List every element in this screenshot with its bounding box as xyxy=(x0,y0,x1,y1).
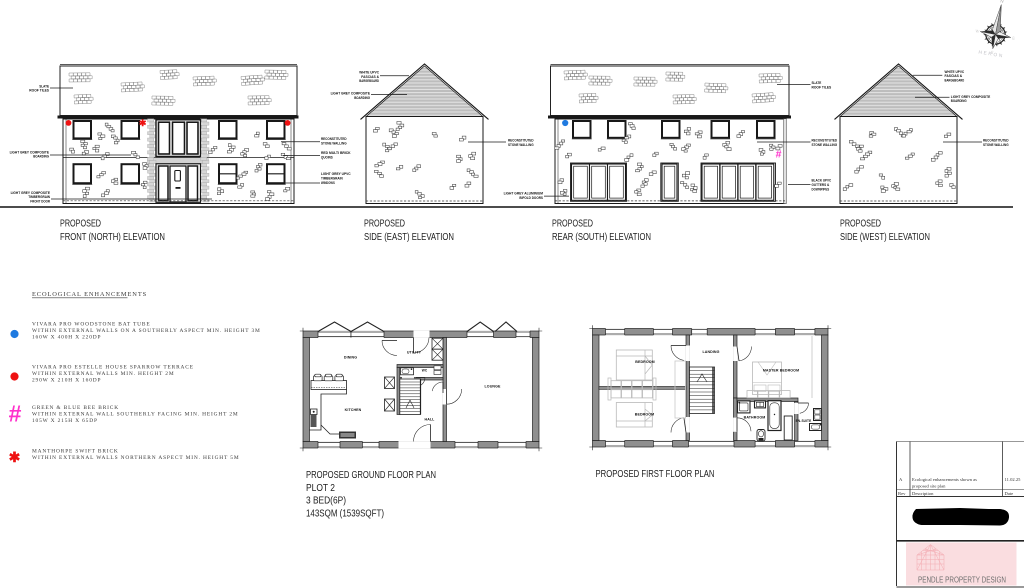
svg-text:FRONT (NORTH) ELEVATION: FRONT (NORTH) ELEVATION xyxy=(60,232,165,243)
svg-text:PROPOSED: PROPOSED xyxy=(60,219,101,230)
svg-text:BEDROOM: BEDROOM xyxy=(635,360,654,364)
svg-text:VIVARA PRO WOODSTONE BAT TUBE: VIVARA PRO WOODSTONE BAT TUBE xyxy=(32,322,151,328)
svg-text:BEDROOM: BEDROOM xyxy=(635,413,654,417)
svg-text:105W X 215H X 65DP: 105W X 215H X 65DP xyxy=(32,418,98,424)
svg-text:WITHIN EXTERNAL WALL SOUTHERLY: WITHIN EXTERNAL WALL SOUTHERLY FACING MI… xyxy=(32,412,239,418)
svg-text:KITCHEN: KITCHEN xyxy=(345,408,362,412)
svg-text:WITHIN EXTERNAL WALLS ON A SOU: WITHIN EXTERNAL WALLS ON A SOUTHERLY ASP… xyxy=(32,328,261,334)
svg-text:PROPOSED FIRST FLOOR PLAN: PROPOSED FIRST FLOOR PLAN xyxy=(596,469,715,480)
svg-text:PROPOSED GROUND FLOOR PLAN: PROPOSED GROUND FLOOR PLAN xyxy=(306,470,436,481)
svg-text:RECONSTITUTEDSTONE WALLING: RECONSTITUTEDSTONE WALLING xyxy=(812,138,838,147)
svg-text:PENDLE PROPERTY DESIGN: PENDLE PROPERTY DESIGN xyxy=(918,576,1006,585)
svg-text:PROPOSED: PROPOSED xyxy=(364,219,405,230)
svg-text:GREEN & BLUE BEE BRICK: GREEN & BLUE BEE BRICK xyxy=(32,405,119,411)
svg-text:✱: ✱ xyxy=(139,118,147,128)
svg-text:LOUNGE: LOUNGE xyxy=(485,385,501,389)
svg-text:SIDE (EAST) ELEVATION: SIDE (EAST) ELEVATION xyxy=(364,232,454,243)
svg-text:UTILITY: UTILITY xyxy=(407,351,422,355)
svg-text:ECOLOGICAL ENHANCEMENTS: ECOLOGICAL ENHANCEMENTS xyxy=(32,291,147,298)
svg-text:WHITE UPVCFASCIAS &BARGEBOARD: WHITE UPVCFASCIAS &BARGEBOARD xyxy=(945,69,965,83)
svg-text:Date: Date xyxy=(1005,491,1014,496)
svg-text:proposed site plan: proposed site plan xyxy=(912,484,946,489)
svg-text:WITHIN EXTERNAL WALLS NORTHERN: WITHIN EXTERNAL WALLS NORTHERN ASPECT MI… xyxy=(32,455,239,461)
svg-text:WHITE UPVCFASCIAS &BARGEBOARD: WHITE UPVCFASCIAS &BARGEBOARD xyxy=(359,69,379,83)
svg-text:#: # xyxy=(776,149,782,161)
svg-text:BATHROOM: BATHROOM xyxy=(744,416,766,420)
svg-text:RECONSTITUTEDSTONE WALLING: RECONSTITUTEDSTONE WALLING xyxy=(508,137,534,146)
svg-text:#: # xyxy=(9,401,22,427)
svg-text:HALL: HALL xyxy=(425,418,436,422)
svg-text:DINING: DINING xyxy=(344,356,357,360)
svg-text:143SQM (1539SQFT): 143SQM (1539SQFT) xyxy=(306,508,384,519)
svg-text:160W X 400H X 220DP: 160W X 400H X 220DP xyxy=(32,335,101,341)
svg-text:✱: ✱ xyxy=(9,449,21,465)
svg-text:Description: Description xyxy=(912,491,934,496)
svg-text:PROPOSED: PROPOSED xyxy=(552,219,593,230)
svg-text:PROPOSED: PROPOSED xyxy=(840,219,881,230)
svg-text:PLOT 2: PLOT 2 xyxy=(306,483,335,494)
svg-text:290W X 210H X 160DP: 290W X 210H X 160DP xyxy=(32,378,101,384)
svg-text:EN-SUITE: EN-SUITE xyxy=(796,419,812,423)
svg-text:LANDING: LANDING xyxy=(702,350,719,354)
svg-text:REAR (SOUTH) ELEVATION: REAR (SOUTH) ELEVATION xyxy=(552,232,651,243)
svg-text:VIVARA PRO ESTELLE HOUSE SPARR: VIVARA PRO ESTELLE HOUSE SPARROW TERRACE xyxy=(32,365,194,371)
svg-text:WITHIN EXTERNAL WALLS MIN. HEI: WITHIN EXTERNAL WALLS MIN. HEIGHT 2M xyxy=(32,371,175,377)
svg-text:MANTHORPE SWIFT BRICK: MANTHORPE SWIFT BRICK xyxy=(32,449,119,455)
svg-text:MASTER BEDROOM: MASTER BEDROOM xyxy=(763,369,799,373)
svg-text:WC: WC xyxy=(422,369,428,373)
svg-text:Ecological enhancements shown: Ecological enhancements shown as xyxy=(912,477,977,482)
svg-text:3 BED(6P): 3 BED(6P) xyxy=(306,496,346,507)
svg-text:BLACK UPVCGUTTERS &DOWNPIPES: BLACK UPVCGUTTERS &DOWNPIPES xyxy=(812,178,832,192)
svg-text:RECONSTITUTEDSTONE WALLING: RECONSTITUTEDSTONE WALLING xyxy=(321,136,347,145)
svg-text:Rev: Rev xyxy=(898,491,906,496)
svg-text:RECONSTITUTEDSTONE WALLING: RECONSTITUTEDSTONE WALLING xyxy=(983,137,1009,146)
svg-text:SIDE (WEST) ELEVATION: SIDE (WEST) ELEVATION xyxy=(840,232,930,243)
svg-text:11.02.25: 11.02.25 xyxy=(1005,477,1022,482)
